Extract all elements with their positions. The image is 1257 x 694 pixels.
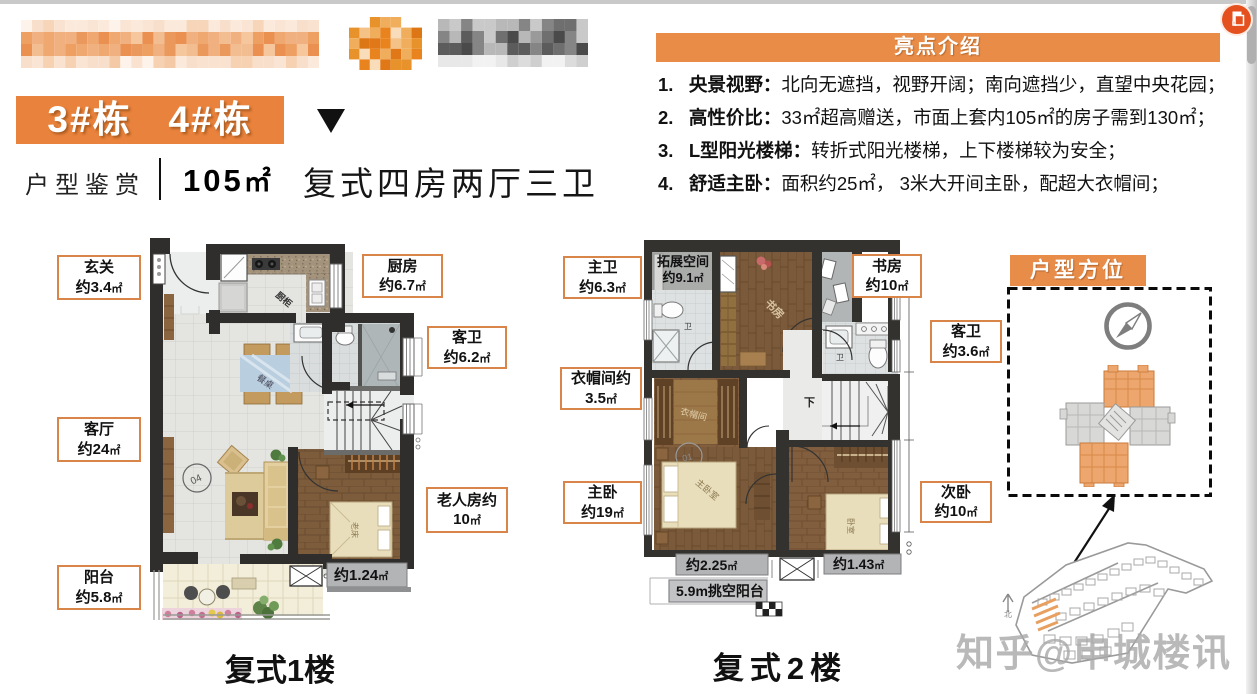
- svg-text:卧室: 卧室: [846, 518, 856, 534]
- svg-text:卫: 卫: [684, 322, 692, 331]
- svg-text:下: 下: [804, 396, 815, 409]
- svg-text:卫: 卫: [836, 353, 844, 362]
- svg-text:老床: 老床: [350, 522, 360, 538]
- svg-text:5.9m挑空阳台: 5.9m挑空阳台: [676, 583, 764, 599]
- svg-text:北: 北: [1004, 610, 1012, 618]
